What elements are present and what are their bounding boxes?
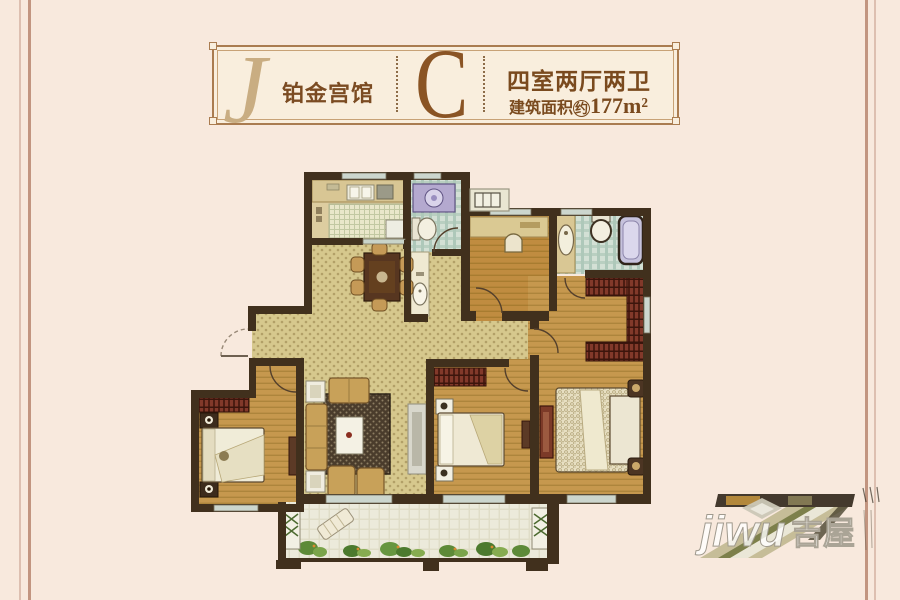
svg-text:吉屋: 吉屋 [791,515,855,551]
svg-text:jiwu: jiwu [695,507,786,556]
